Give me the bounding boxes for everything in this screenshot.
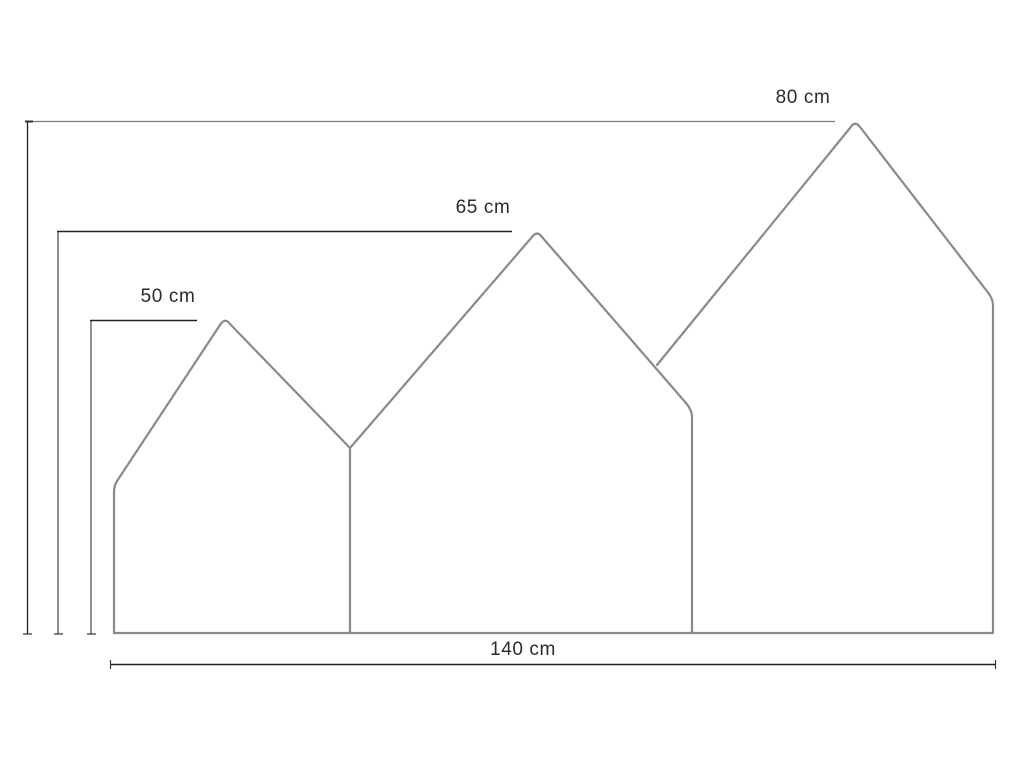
house-medium-outline: [350, 234, 692, 634]
dimension-label-house-large-height: 80 cm: [776, 87, 831, 109]
dimension-drawing-canvas: 80 cm 65 cm 50 cm 140 cm: [0, 0, 1024, 768]
house-small-outline: [114, 321, 350, 633]
dimension-label-house-small-height: 50 cm: [141, 286, 196, 308]
dimension-label-total-width: 140 cm: [490, 639, 556, 661]
dimension-label-house-medium-height: 65 cm: [456, 197, 511, 219]
house-large-outline: [657, 124, 993, 632]
